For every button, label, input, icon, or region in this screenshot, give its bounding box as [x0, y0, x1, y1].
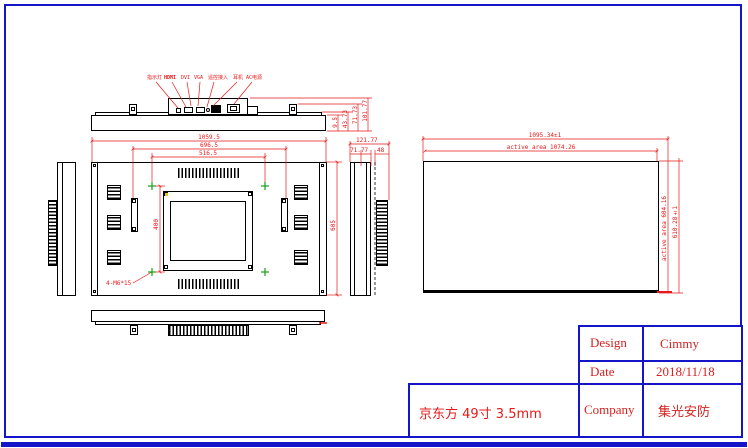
handle-right-bottom-hole: [282, 227, 286, 231]
company-label: Company: [584, 402, 635, 418]
date-value: 2018/11/18: [656, 364, 715, 380]
vent-block-left-3: [107, 250, 121, 265]
dim-front-width-outer: 1059.5: [198, 134, 220, 141]
dim-top-t2: 43.73: [342, 110, 349, 128]
right-side-inner-line-2: [366, 163, 367, 295]
handle-left-bottom-hole: [132, 227, 136, 231]
corner-screw-tr: [321, 164, 324, 167]
rear-left-frame-line: [97, 163, 98, 295]
handle-right-top-hole: [282, 199, 286, 203]
screw-note: 4-M6*15: [106, 280, 131, 287]
earphone-label: 耳机: [233, 75, 243, 81]
company-value: 集光安防: [658, 401, 710, 420]
dim-screen-width-active: active area 1074.26: [507, 144, 576, 151]
title-block-row-divider-2: [578, 383, 743, 385]
dim-top-t4: 101.77: [362, 100, 369, 122]
top-view-body: [91, 115, 326, 131]
indicator-led: [176, 108, 181, 113]
hdmi-label: HDMI: [164, 75, 176, 81]
dim-front-width-inner: 516.5: [199, 150, 217, 157]
dim-vesa-vertical: 400: [153, 219, 160, 230]
dim-side-depth-outer: 121.77: [356, 137, 378, 144]
vesa-frame-inner: [170, 201, 246, 261]
left-side-vent: [48, 200, 57, 266]
dim-front-height: 605: [330, 220, 337, 231]
vesa-yellow-mark: [165, 193, 168, 196]
dim-screen-height-outer: 610.28±1: [672, 206, 679, 238]
bottom-grill: [168, 325, 249, 336]
right-side-inner-line-1: [354, 163, 355, 295]
cad-drawing-page: 指示灯 HDMI DVI VGA 遥控接入 耳机 AC电源 9.5 43.73 …: [0, 0, 748, 448]
design-label: Design: [590, 335, 627, 351]
vga-port: [196, 107, 205, 113]
corner-screw-br: [321, 290, 324, 293]
vent-strip-bottom: [178, 279, 240, 289]
handle-left-top-hole: [132, 199, 136, 203]
earphone-jack: [206, 108, 210, 112]
dvi-label: DVI: [181, 75, 190, 81]
connector-housing-step: [247, 106, 258, 115]
design-value: Cimmy: [660, 336, 699, 352]
corner-screw-tl: [93, 164, 96, 167]
vent-block-left-1: [107, 185, 121, 200]
vesa-corner-br: [248, 265, 252, 269]
vent-block-left-2: [107, 215, 121, 230]
dim-top-t3: 71.73: [352, 106, 359, 124]
corner-screw-bl: [93, 290, 96, 293]
dim-side-depth-mid: 71.77: [350, 147, 368, 154]
dim-screen-height-active: active area 604.16: [661, 196, 668, 261]
dim-side-depth-inner: 48: [377, 147, 384, 154]
right-side-vent: [376, 200, 388, 266]
remote-label: 遥控接入: [208, 75, 228, 81]
top-mount-tab-left-hole: [131, 107, 135, 111]
hdmi-port: [184, 107, 193, 113]
bottom-tab-left-hole: [132, 328, 136, 332]
vesa-corner-tr: [248, 192, 252, 196]
ac-power-label: AC电源: [246, 75, 262, 81]
title-block-row-divider-1: [578, 360, 743, 362]
dim-front-width-mid: 696.5: [200, 142, 218, 149]
dim-top-t1: 9.5: [332, 117, 339, 128]
screen-outline: [423, 161, 659, 293]
vent-block-right-2: [294, 215, 308, 230]
ac-socket-inner: [230, 106, 237, 111]
left-side-body: [57, 162, 76, 296]
indicator-label: 指示灯: [147, 75, 162, 81]
left-side-inner-line: [62, 163, 63, 295]
remote-receiver: [211, 105, 221, 113]
vent-strip-top: [178, 168, 240, 178]
rear-right-frame-line: [319, 163, 320, 295]
vesa-corner-bl: [164, 265, 168, 269]
bottom-tab-right-hole: [291, 328, 295, 332]
title-block-col-divider: [642, 325, 644, 438]
top-mount-tab-right-hole: [291, 107, 295, 111]
panel-note-text: 京东方 49寸 3.5mm: [419, 403, 542, 422]
vent-block-right-3: [294, 250, 308, 265]
page-border-bottom-band: [1, 442, 747, 447]
vent-block-right-1: [294, 185, 308, 200]
date-label: Date: [590, 364, 615, 380]
dim-screen-width-outer: 1095.34±1: [529, 132, 562, 139]
vga-label: VGA: [194, 75, 203, 81]
